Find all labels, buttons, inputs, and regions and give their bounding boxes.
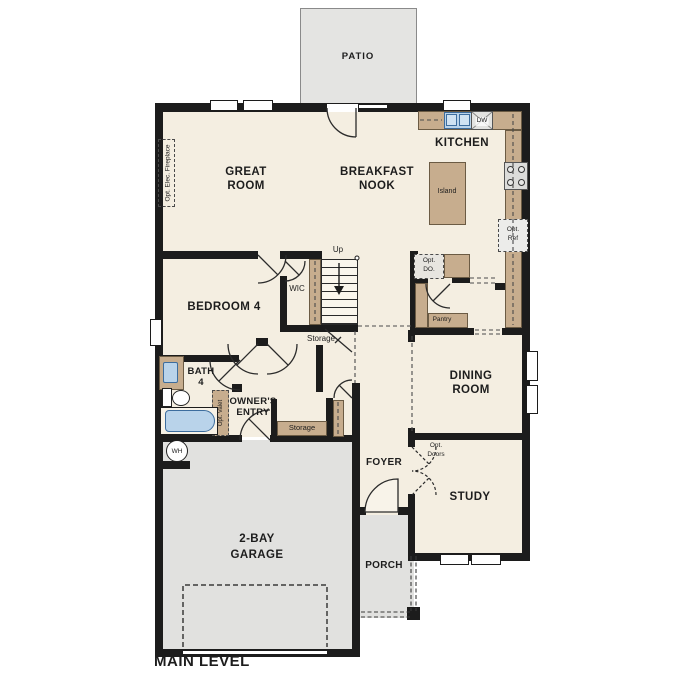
toilet-tank [162,388,172,407]
opt-doors-label: Opt. Doors [427,442,444,459]
wall-hall-stub [316,345,323,392]
room-label-bath4: BATH 4 [188,366,215,388]
wall-foyer-front-a [352,507,366,515]
wall-bedroom-wic-corner [280,251,286,259]
window [443,100,471,111]
staircase [321,259,358,325]
toilet-bowl [172,390,190,406]
room-label-kitchen: KITCHEN [435,136,489,150]
wic-shelf [309,259,321,325]
wall-pantry-bottom-b [502,328,530,335]
oven-counter [444,254,470,278]
opt-ref-label: Opt. Ref [507,226,519,243]
wall-closet-right [326,398,333,437]
wall-pantry-bottom-a [410,328,474,335]
wall-under-stairs [280,325,358,332]
burner-icon [518,166,525,173]
window [471,554,501,565]
room-label-patio: PATIO [342,51,375,62]
wall-bath-bottom [155,435,223,442]
wall-garage-top-a [223,435,242,442]
storage-under-stairs-label: Storage [307,334,335,344]
room-label-great-room: GREAT ROOM [225,165,266,193]
pantry-label: Pantry [433,316,452,325]
page-title: MAIN LEVEL [154,653,250,670]
room-label-garage: 2-BAY GARAGE [231,531,284,563]
room-label-foyer: FOYER [366,457,402,468]
room-label-bedroom4: BEDROOM 4 [187,300,260,314]
room-label-dining: DINING ROOM [450,369,493,397]
room-label-study: STUDY [450,490,491,504]
burner-icon [507,179,514,186]
wall-bedroom-top-stub [286,251,322,259]
patio-sidelite-window [358,104,388,109]
wall-garage-right [352,437,360,657]
wall-hinge-block [256,338,268,346]
wall-bedroom-top [155,251,258,259]
water-heater: WH [166,440,188,462]
pantry-counter-left [415,283,428,328]
closet-strip [333,400,344,437]
kitchen-sink-basin-left [446,114,457,126]
opt-valet-label: Opt. Valet [218,400,224,426]
window [243,100,273,111]
window [210,100,238,111]
window [526,351,538,381]
burner-icon [518,179,525,186]
wall-owner-stub [232,384,242,392]
wall-dining-stub-bottom [408,428,415,447]
window [440,554,469,565]
window [150,319,162,346]
storage-closet-label: Storage [289,423,315,432]
wall-study-bottom [408,553,530,561]
window [526,385,538,414]
stairs-up-label: Up [333,245,343,255]
bath-sink [163,362,178,383]
wall-dining-stub-top [408,330,415,342]
water-heater-label: WH [172,448,183,455]
island-label: Island [438,188,457,196]
patio-door-opening [327,104,358,112]
opt-do-label: Opt. DO. [423,257,435,274]
room-label-porch: PORCH [365,560,403,571]
burner-icon [507,166,514,173]
room-label-wic: WIC [289,284,305,294]
floor-plan: WH [0,0,687,687]
wall-study-left [408,494,415,553]
room-label-breakfast-nook: BREAKFAST NOOK [340,165,414,193]
wall-wh-stub [163,461,190,469]
range-cooktop [504,162,528,190]
wall-bedroom-wic [280,276,287,331]
wall-dining-study [415,433,530,440]
bathtub [165,410,215,432]
wall-hall-foyer [352,383,360,437]
room-label-owners-entry: OWNER'S ENTRY [229,396,276,418]
opt-fireplace-label: Opt. Elec. Fireplace [165,144,172,201]
kitchen-sink-basin-right [459,114,470,126]
porch-post [407,607,420,620]
dishwasher-label: DW [476,117,489,126]
